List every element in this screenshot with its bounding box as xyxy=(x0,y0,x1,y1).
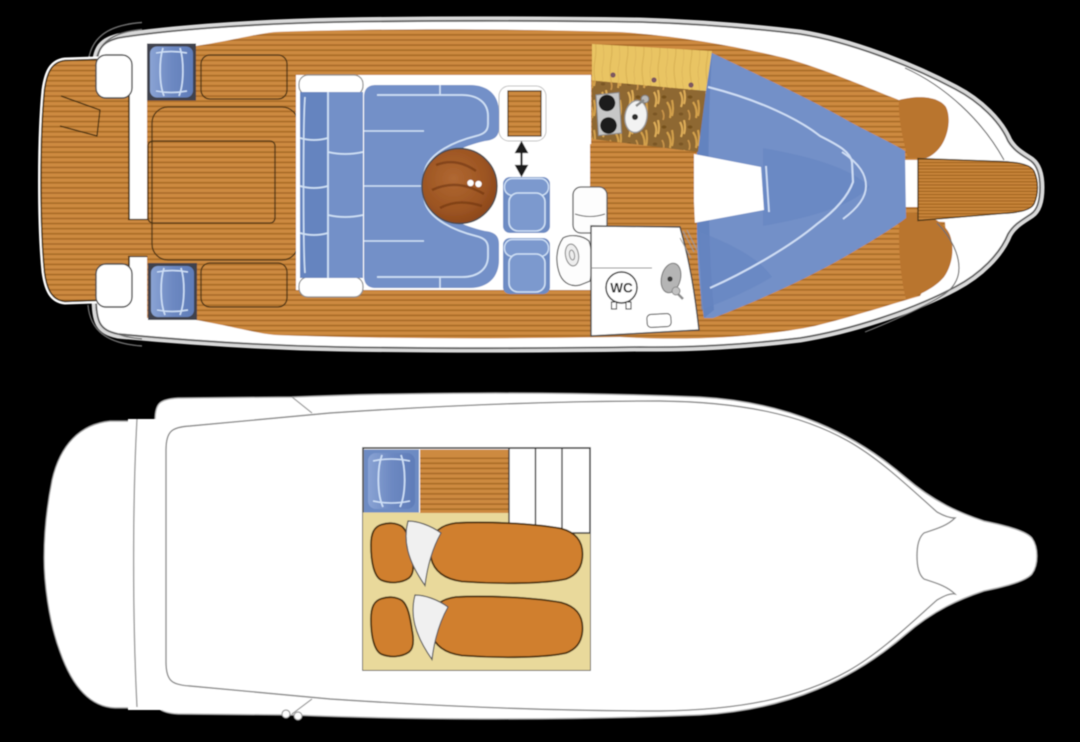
svg-text:WC: WC xyxy=(610,281,633,296)
